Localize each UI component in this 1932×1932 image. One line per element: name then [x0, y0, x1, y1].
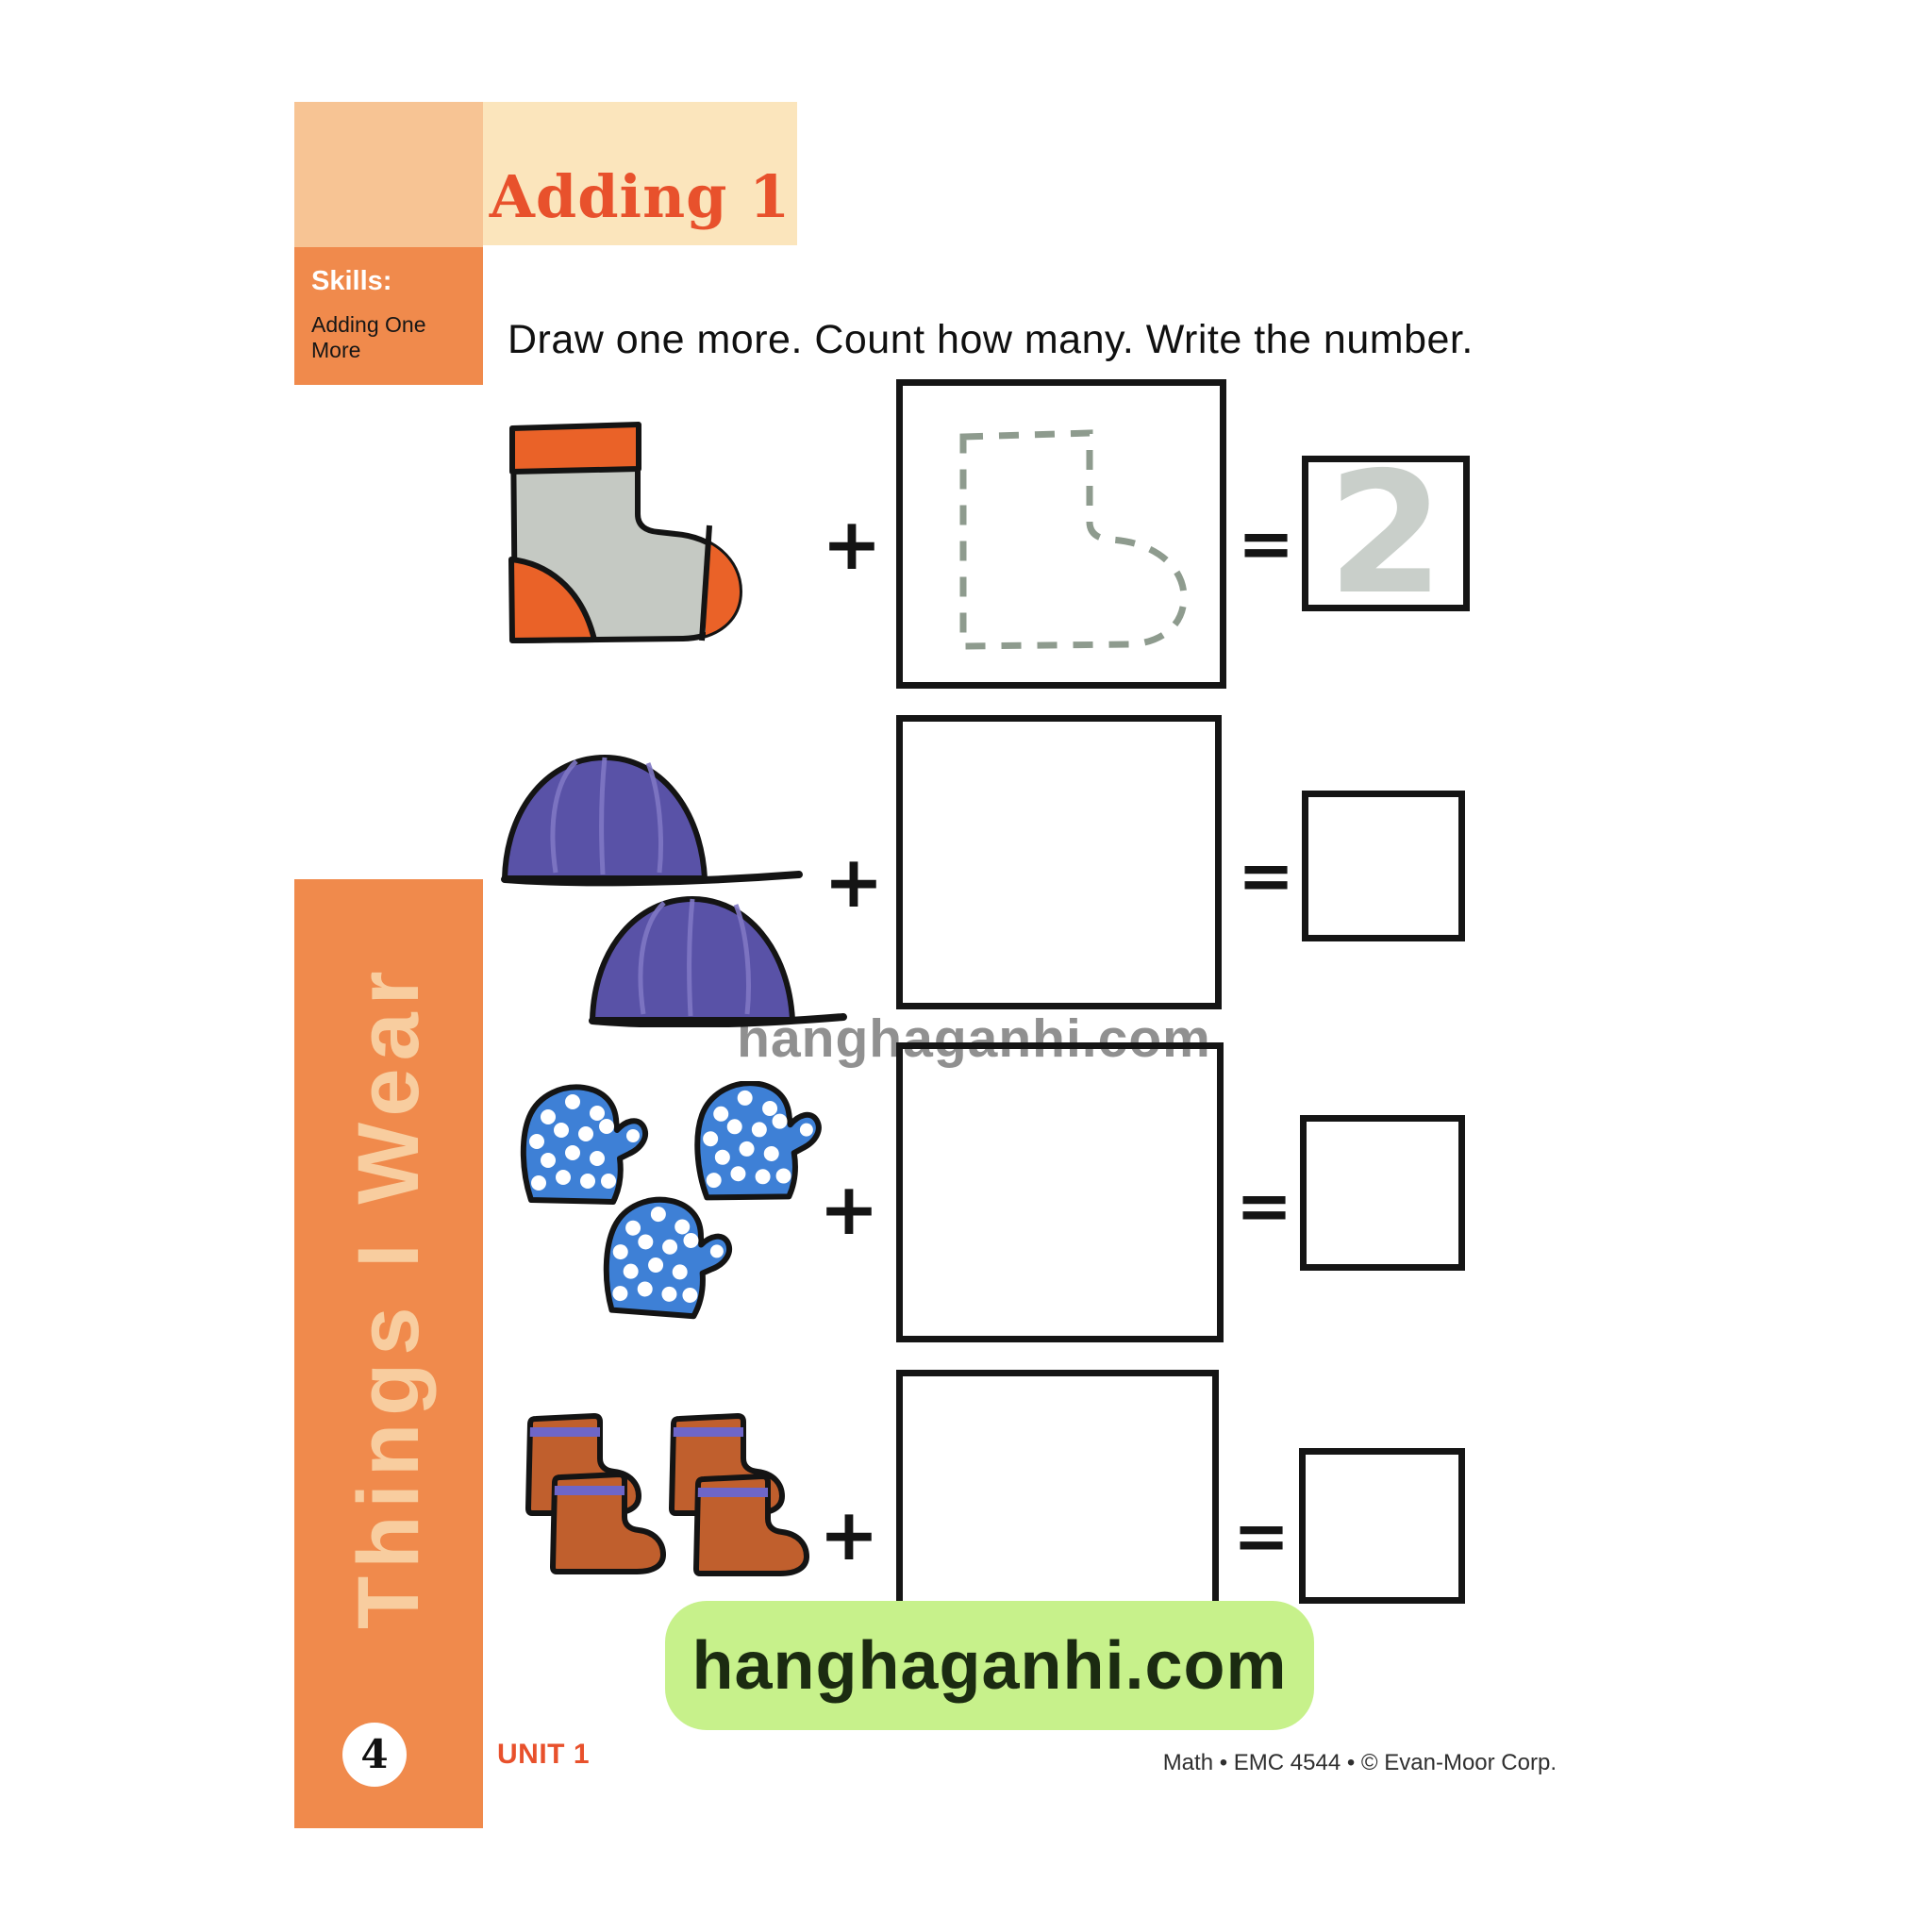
copyright-text: Math • EMC 4544 • © Evan-Moor Corp.: [1085, 1750, 1557, 1776]
plus-sign: +: [814, 503, 890, 586]
plus-sign: +: [811, 1493, 887, 1576]
boot-4: [696, 1476, 807, 1574]
equals-sign: =: [1228, 1498, 1294, 1577]
plus-sign: +: [816, 841, 891, 924]
equals-sign: =: [1231, 1168, 1297, 1247]
worksheet-page: Adding 1 Skills: Adding One More Draw on…: [0, 0, 1932, 1932]
equals-sign: =: [1233, 838, 1299, 917]
answer-box-row4[interactable]: [1299, 1448, 1465, 1604]
answer-box-row1[interactable]: 2: [1302, 456, 1470, 611]
unit-label: UNIT 1: [497, 1739, 590, 1771]
answer-trace-number: 2: [1327, 463, 1444, 605]
header-accent-block: [294, 102, 483, 247]
draw-box-row3[interactable]: [896, 1042, 1224, 1342]
mitten-3: [604, 1197, 731, 1318]
mitten-1: [524, 1087, 645, 1202]
cap-1: [505, 758, 799, 882]
instruction-text: Draw one more. Count how many. Write the…: [508, 317, 1474, 363]
answer-box-row3[interactable]: [1300, 1115, 1465, 1271]
skills-text: Adding One More: [311, 312, 443, 363]
watermark-badge: hanghaganhi.com: [665, 1601, 1314, 1730]
draw-box-row2[interactable]: [896, 715, 1222, 1009]
equals-sign: =: [1233, 506, 1299, 585]
plus-sign: +: [811, 1168, 887, 1251]
cap-2: [592, 899, 843, 1024]
watermark-badge-text: hanghaganhi.com: [691, 1627, 1287, 1705]
skills-label: Skills:: [311, 266, 466, 297]
sock-trace-outline-icon[interactable]: [948, 422, 1201, 656]
boots-icon: [517, 1413, 811, 1581]
page-number-badge: 4: [342, 1723, 407, 1787]
page-title: Adding 1: [483, 162, 797, 231]
mittens-icon: [514, 1081, 830, 1324]
unit-sidebar-label: Things I Wear: [294, 887, 483, 1706]
sock-icon: [500, 418, 747, 646]
skills-panel: Skills: Adding One More: [294, 247, 483, 385]
draw-box-row1[interactable]: [896, 379, 1226, 689]
answer-box-row2[interactable]: [1302, 791, 1465, 941]
title-banner: Adding 1: [483, 102, 797, 245]
mitten-2: [695, 1081, 821, 1200]
boot-2: [553, 1474, 663, 1572]
